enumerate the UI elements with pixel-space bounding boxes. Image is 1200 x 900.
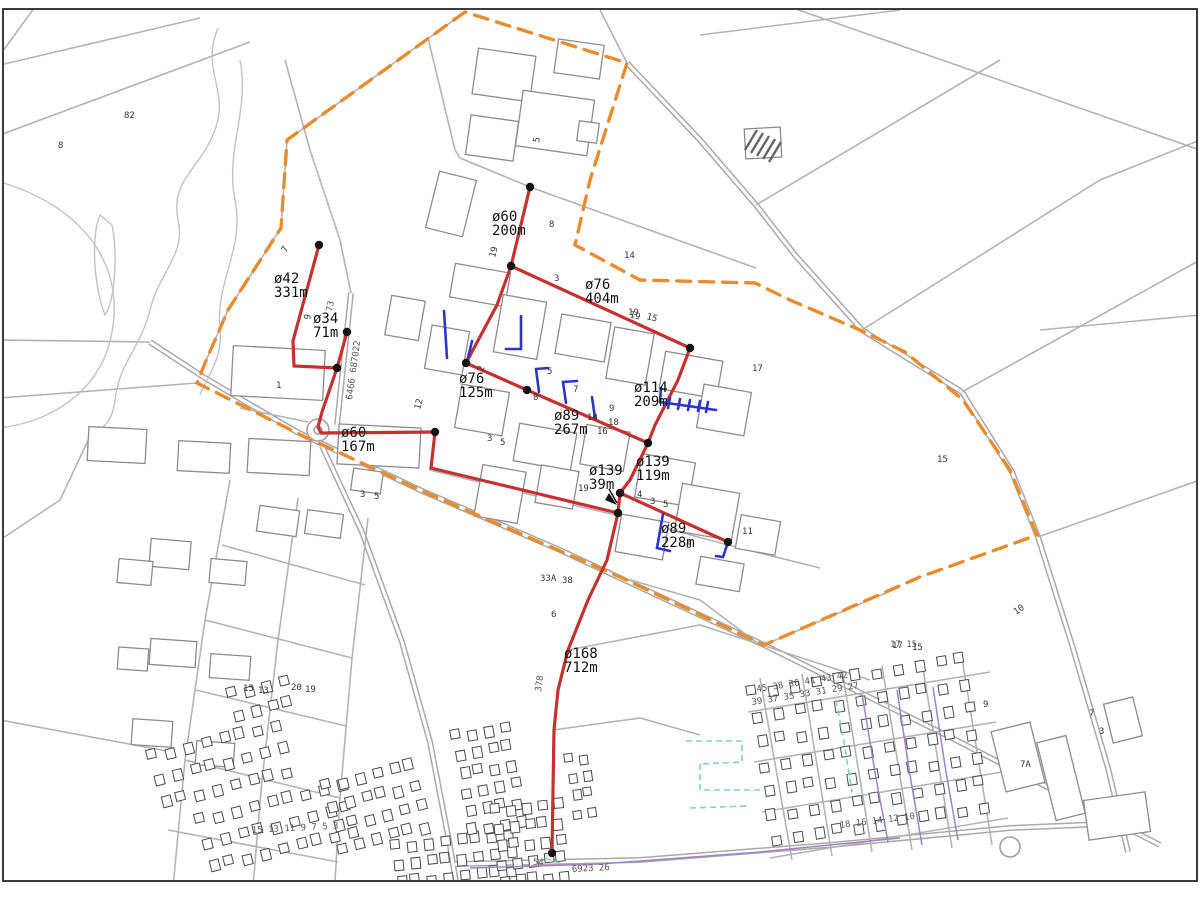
junction-node: [315, 241, 323, 249]
parcel-number: 3: [554, 274, 559, 284]
pipe-label: ø139119m: [636, 454, 670, 484]
parcel-number: 18: [608, 418, 619, 428]
junction-node: [614, 509, 622, 517]
parcel-number: 7: [573, 385, 578, 395]
road-label: 54: [533, 858, 544, 868]
parcel-number: 3: [650, 497, 655, 507]
parcel-number: 5: [663, 500, 668, 510]
junction-node: [431, 428, 439, 436]
parcel-number: 6: [551, 610, 556, 620]
parcel-number: 17: [752, 364, 763, 374]
road-label: 73: [325, 300, 337, 312]
parcel-number: 9: [983, 700, 988, 710]
parcel-number: 5: [374, 492, 379, 502]
parcel-number: 13: [258, 686, 269, 696]
junction-nodes: [315, 183, 732, 857]
parcel-number: 33A: [540, 574, 557, 584]
pipe-network-drawing: ø60200mø42331mø3471mø76404mø76125mø89267…: [0, 0, 1200, 900]
pipe-label: ø168712m: [564, 646, 598, 676]
parcel-number: 7: [280, 245, 291, 255]
parcel-number: 6: [686, 541, 691, 551]
parcel-number: 19: [305, 685, 316, 695]
parcel-number: 4: [637, 490, 642, 500]
pipe-label: ø13939m: [589, 463, 623, 493]
parcel-number: 15: [937, 455, 948, 465]
pipe-label: ø3471m: [313, 311, 338, 341]
parcel-number: 20: [291, 683, 302, 693]
parcel-number: 14: [624, 251, 635, 261]
road-label: 17 15: [890, 640, 917, 650]
parcel-number: 9: [609, 404, 614, 414]
parcel-number: 3: [360, 490, 365, 500]
parcel-number: 15: [243, 684, 254, 694]
parcel-number: 10: [587, 413, 598, 423]
junction-node: [724, 538, 732, 546]
road-label: 15 13 11 9 7 5 3: [252, 821, 339, 836]
junction-node: [462, 359, 470, 367]
parcel-number: 1: [276, 381, 281, 391]
parcel-number: 11: [742, 527, 753, 537]
pipe-label: ø76125m: [459, 371, 493, 401]
parcel-number: 16: [597, 427, 608, 437]
parcel-number: 8: [58, 141, 63, 151]
junction-node: [333, 364, 341, 372]
junction-node: [343, 328, 351, 336]
pipe-label: ø60200m: [492, 209, 526, 239]
house-cluster: [490, 797, 572, 890]
junction-node: [548, 849, 556, 857]
parcel-number: 5: [500, 438, 505, 448]
pipe-label: ø114209m: [634, 380, 668, 410]
junction-node: [686, 344, 694, 352]
house-cluster: [564, 751, 598, 820]
road-label: 6923 26: [572, 863, 610, 875]
pipe-label: ø42331m: [274, 271, 308, 301]
pipe-label: ø76404m: [585, 277, 619, 307]
parcel-number: 3: [487, 434, 492, 444]
parcel-number: 12: [413, 398, 425, 411]
map-viewport: ø60200mø42331mø3471mø76404mø76125mø89267…: [0, 0, 1200, 900]
parcel-number: 7A: [1020, 760, 1031, 770]
junction-node: [523, 386, 531, 394]
parcel-number: 5: [547, 367, 552, 377]
pipe-label: ø89267m: [554, 408, 588, 438]
junction-node: [616, 489, 624, 497]
parcel-number: 8: [549, 220, 554, 230]
parcel-number: 19: [578, 484, 589, 494]
parcel-number: 3: [1099, 727, 1104, 737]
house-cluster: [450, 720, 529, 837]
parcel-number: 15: [645, 312, 658, 324]
parcel-number: 19: [628, 308, 639, 318]
junction-node: [507, 262, 515, 270]
parcel-number: 82: [124, 111, 135, 121]
house-cluster: [226, 673, 296, 722]
parcel-number: 19: [488, 246, 500, 259]
parcel-number: 7: [1089, 709, 1094, 719]
road-label: 378: [534, 675, 546, 692]
parcel-number: 8: [533, 393, 538, 403]
junction-node: [526, 183, 534, 191]
junction-node: [644, 439, 652, 447]
parcel-number: 10: [1012, 603, 1027, 617]
parcel-number: 38: [562, 576, 573, 586]
